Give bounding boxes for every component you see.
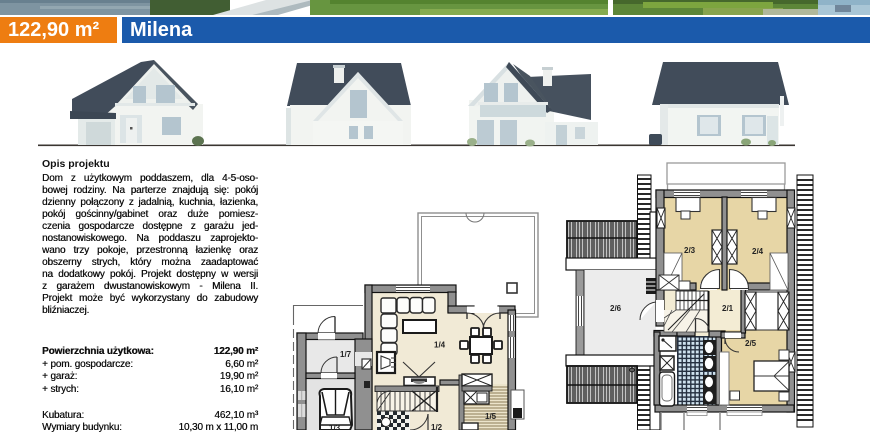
svg-text:2/6: 2/6	[610, 304, 622, 313]
svg-text:1/5: 1/5	[485, 412, 497, 421]
svg-text:2/1: 2/1	[722, 304, 734, 313]
svg-text:2/5: 2/5	[745, 339, 757, 348]
svg-text:1/4: 1/4	[434, 341, 446, 350]
svg-text:1/2: 1/2	[431, 423, 443, 430]
svg-text:2/3: 2/3	[684, 246, 696, 255]
svg-text:1/3: 1/3	[329, 424, 341, 431]
svg-text:2/4: 2/4	[752, 247, 764, 256]
svg-text:1/7: 1/7	[340, 350, 352, 359]
